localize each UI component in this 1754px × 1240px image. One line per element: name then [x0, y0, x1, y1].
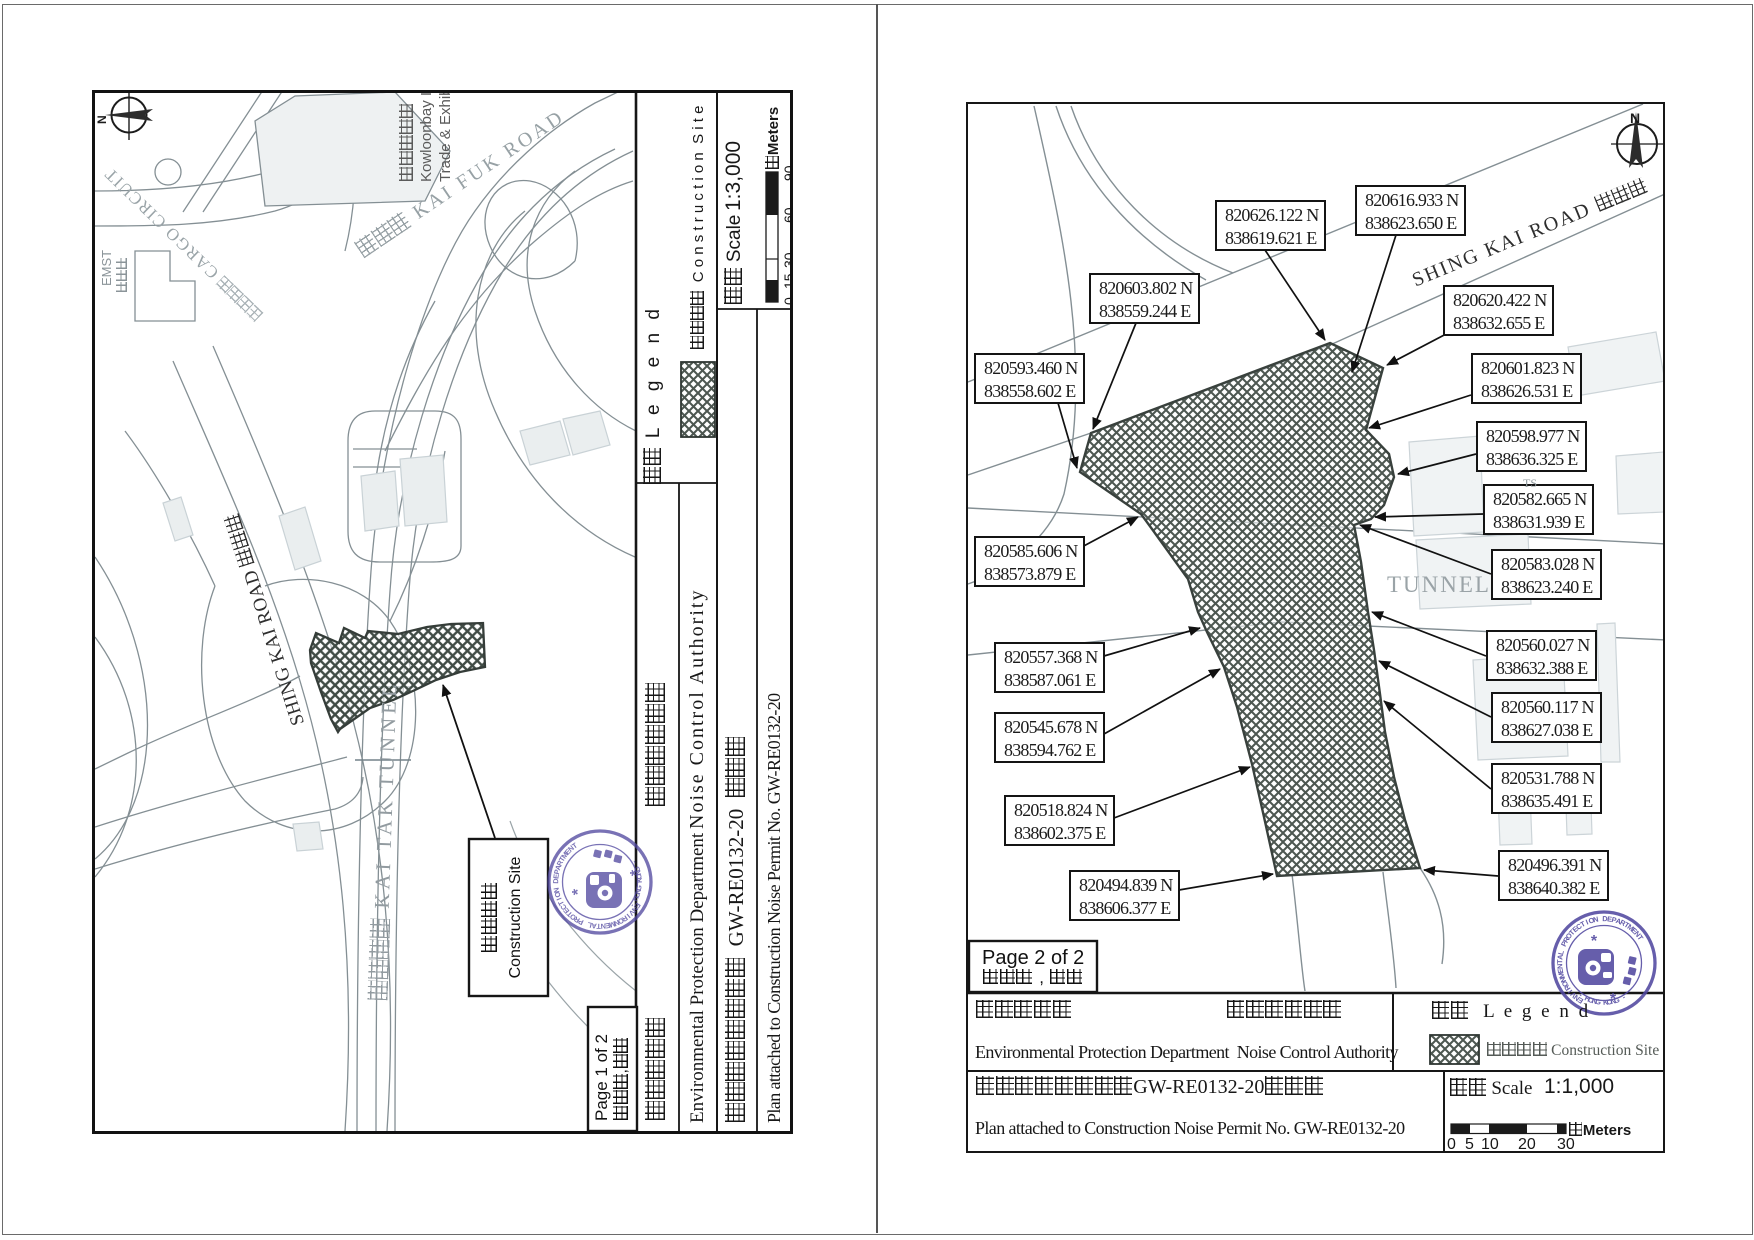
svg-text:*: * [1610, 991, 1617, 1008]
svg-text:L: L [1556, 949, 1566, 956]
svg-text:G: G [1595, 997, 1602, 1007]
svg-text:N: N [1592, 915, 1599, 925]
svg-text:N: N [95, 115, 109, 124]
svg-text:*: * [1591, 933, 1598, 950]
